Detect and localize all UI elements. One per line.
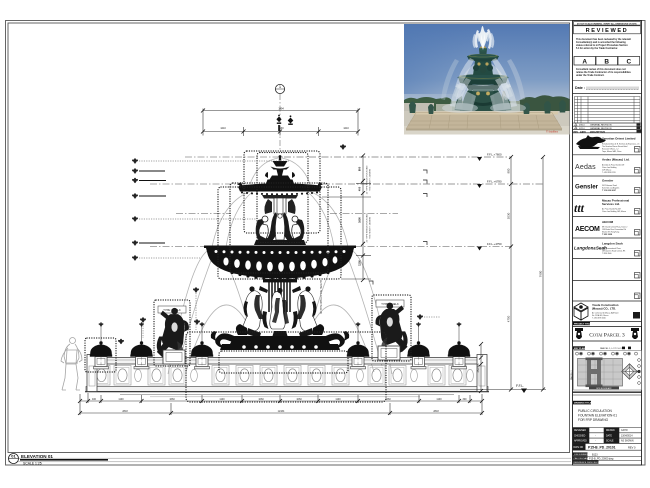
svg-text:800: 800	[358, 166, 362, 171]
svg-text:F.F.L.+6780: F.F.L.+6780	[487, 180, 502, 184]
svg-text:F.F.L.: F.F.L.	[516, 384, 524, 388]
svg-text:2# TYPE WHELK FOUNTAIN: 2# TYPE WHELK FOUNTAIN	[366, 213, 369, 242]
svg-text:Taipa, Macau SAR, China: Taipa, Macau SAR, China	[602, 150, 621, 153]
svg-text:1210: 1210	[343, 127, 349, 130]
svg-text:SITE BOUNDARY: SITE BOUNDARY	[596, 387, 612, 390]
svg-text:DWG NO: DWG NO	[574, 447, 584, 449]
svg-text:4750: 4750	[507, 315, 511, 322]
svg-text:relieve the Trade Contractor o: relieve the Trade Contractor of its resp…	[576, 71, 632, 74]
svg-text:DRAWING TITLE: DRAWING TITLE	[574, 402, 592, 405]
svg-text:Langdon Seah: Langdon Seah	[602, 242, 623, 246]
svg-text:1650: 1650	[358, 217, 362, 223]
svg-text:Services Ltd.: Services Ltd.	[602, 202, 620, 206]
svg-text:ttt: ttt	[574, 201, 585, 215]
svg-text:01: 01	[11, 454, 16, 459]
svg-text:THE HEIGHT 2480MM: THE HEIGHT 2480MM	[370, 169, 372, 192]
svg-text:DRAWN: DRAWN	[606, 429, 615, 432]
svg-text:CAHO: CAHO	[621, 429, 628, 432]
svg-text:GENERAL REVISION: GENERAL REVISION	[590, 124, 612, 127]
svg-text:T 852 2828: T 852 2828	[602, 234, 613, 236]
svg-text:JOB NUMBER: JOB NUMBER	[574, 454, 588, 456]
svg-text:AECOM: AECOM	[575, 226, 600, 233]
svg-text:800: 800	[507, 168, 511, 173]
svg-text:5.4 for action by the Trade Co: 5.4 for action by the Trade Contractor.	[576, 47, 618, 50]
svg-text:03/14: 03/14	[579, 125, 585, 127]
svg-text:PARCEL 1, LOT 2 & 3: PARCEL 1, LOT 2 & 3	[600, 347, 622, 350]
svg-text:Gensler: Gensler	[575, 184, 599, 191]
svg-text:Consultants(s) and is accorded: Consultants(s) and is accorded the follo…	[576, 41, 626, 44]
svg-text:2818: 2818	[433, 410, 439, 413]
svg-text:PUBLIC CIRCULATION: PUBLIC CIRCULATION	[578, 409, 612, 413]
svg-text:T 2830 3500: T 2830 3500	[602, 253, 612, 255]
svg-text:1210: 1210	[220, 127, 226, 130]
svg-text:CAD FILE NAME: CAD FILE NAME	[574, 457, 591, 460]
svg-text:1100: 1100	[335, 398, 341, 401]
svg-text:(Macau) CO., LTD.: (Macau) CO., LTD.	[592, 307, 616, 311]
svg-text:China Law Building 16/F, Macau: China Law Building 16/F, Macau	[602, 211, 626, 213]
svg-text:A: A	[582, 58, 587, 65]
svg-text:CHECKED: CHECKED	[574, 435, 586, 437]
svg-text:Aedas: Aedas	[575, 164, 596, 171]
svg-text:Aedas (Macau) Ltd.: Aedas (Macau) Ltd.	[602, 158, 630, 162]
svg-text:7600: 7600	[539, 270, 543, 277]
svg-text:450 595: 450 595	[477, 363, 480, 372]
svg-text:FOUNTAIN ELEVATION-01: FOUNTAIN ELEVATION-01	[578, 414, 617, 418]
svg-text:2818: 2818	[122, 410, 128, 413]
svg-text:T +853 2833 1113: T +853 2833 1113	[602, 172, 616, 174]
svg-text:1660: 1660	[169, 398, 175, 401]
svg-text:1# TYPE WHELK FOUNTAIN: 1# TYPE WHELK FOUNTAIN	[366, 165, 369, 194]
svg-text:DO NOT SCALE DRAWING. VERIFY A: DO NOT SCALE DRAWING. VERIFY ALL DIMENSI…	[577, 22, 638, 25]
svg-text:3# TYPE WHELK THE HEIGHT: 3# TYPE WHELK THE HEIGHT	[320, 280, 323, 314]
svg-text:REFERENCE DWG FILE NAME: REFERENCE DWG FILE NAME	[574, 461, 605, 464]
svg-text:300: 300	[463, 398, 468, 401]
svg-text:1060: 1060	[258, 398, 264, 401]
svg-text:status referred to in Project: status referred to in Project Procedure …	[576, 44, 628, 47]
svg-text:12434: 12434	[278, 410, 285, 413]
svg-text:1060: 1060	[296, 398, 302, 401]
svg-text:C: C	[626, 58, 631, 65]
svg-text:1494: 1494	[278, 108, 284, 111]
svg-text:© fotolibra: © fotolibra	[546, 130, 558, 134]
svg-text:Consultant review of this docu: Consultant review of this document does …	[576, 68, 626, 71]
svg-text:KEY PLAN: KEY PLAN	[574, 347, 585, 350]
svg-text:AECOM: AECOM	[602, 220, 614, 224]
svg-text:Venetian Orient Limited: Venetian Orient Limited	[602, 137, 636, 141]
svg-text:T 310.829.9087: T 310.829.9087	[602, 190, 617, 192]
svg-text:REV 0: REV 0	[628, 446, 636, 450]
svg-text:F.F.L.+4750: F.F.L.+4750	[487, 242, 502, 246]
svg-text:1100: 1100	[118, 398, 124, 401]
svg-text:1250: 1250	[358, 260, 362, 266]
svg-text:13/04/2014: 13/04/2014	[621, 435, 633, 437]
svg-text:B123: B123	[592, 453, 598, 456]
svg-text:400: 400	[358, 186, 362, 191]
svg-text:B: B	[604, 58, 609, 65]
svg-text:DESIGNED: DESIGNED	[574, 430, 586, 432]
svg-text:1100: 1100	[436, 398, 442, 401]
svg-text:400: 400	[92, 398, 97, 401]
svg-text:under the Trade Contract.: under the Trade Contract.	[576, 74, 605, 77]
svg-text:AS SHOWN: AS SHOWN	[621, 440, 634, 443]
svg-text:APPROVED: APPROVED	[574, 440, 587, 443]
svg-text:Gensler: Gensler	[602, 179, 614, 183]
svg-text:PARCEL 3: PARCEL 3	[570, 370, 573, 380]
svg-text:DATE: DATE	[606, 434, 612, 437]
svg-text:SCALE: SCALE	[606, 440, 614, 443]
svg-text:SCALE 1:25: SCALE 1:25	[23, 461, 42, 465]
svg-text:P15-B_PD_20101: P15-B_PD_20101	[588, 446, 616, 450]
svg-text:2030: 2030	[507, 212, 511, 219]
svg-text:FOR FRP DRAWING: FOR FRP DRAWING	[578, 418, 609, 422]
svg-text:PROJECT TITLE: PROJECT TITLE	[574, 324, 592, 326]
svg-text:GENERAL REVISION: GENERAL REVISION	[590, 127, 612, 130]
svg-text:Date :: Date :	[575, 86, 585, 90]
svg-text:This document has been reviewe: This document has been reviewed by the r…	[576, 38, 631, 41]
svg-text:ELEVATION 01: ELEVATION 01	[21, 454, 53, 459]
svg-text:02/14: 02/14	[579, 128, 585, 130]
svg-text:T +853 2870 0000: T +853 2870 0000	[592, 318, 606, 320]
svg-text:F.F.L.+7600: F.F.L.+7600	[487, 153, 502, 157]
svg-text:1100: 1100	[219, 398, 225, 401]
svg-text:1660: 1660	[385, 398, 391, 401]
svg-text:P15-B_PD_20000.dwg: P15-B_PD_20000.dwg	[589, 457, 614, 460]
svg-text:REVIEWED: REVIEWED	[586, 28, 629, 34]
svg-text:THE HEIGHT 1890MM: THE HEIGHT 1890MM	[370, 217, 372, 240]
